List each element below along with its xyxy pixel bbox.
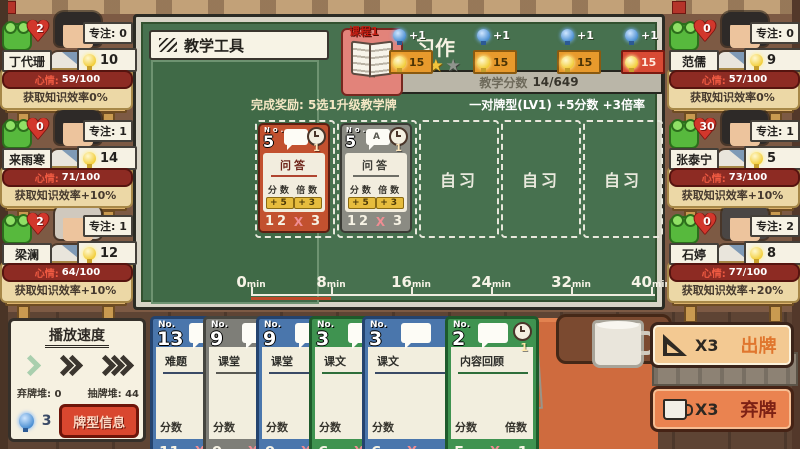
student-panel: ♥0 专注: 0 范儒 9 心情:57/100 获取知识效率0%	[667, 12, 800, 114]
bulb-icon	[393, 56, 406, 69]
student-name: 来雨寒	[2, 148, 52, 170]
student-name: 石婷	[669, 243, 719, 265]
bulb-icon	[750, 247, 763, 260]
hand-card[interactable]: No.2 1 内容回顾 分数 倍数 5X1	[445, 316, 539, 449]
book-icon	[351, 42, 393, 74]
card-mult: 3	[311, 214, 323, 229]
discard-pile-count: 弃牌堆: 0	[17, 385, 61, 400]
timeline-axis	[251, 294, 655, 296]
bulb-icon	[561, 56, 574, 69]
knowledge-badge: 12	[77, 241, 137, 265]
efficiency-text: 获取知识效率+10%	[0, 282, 131, 298]
focus-badge: 专注: 1	[83, 120, 133, 142]
student-name: 丁代珊	[2, 50, 52, 72]
speed-1x-button[interactable]	[21, 354, 40, 377]
student-panel: ♥0 专注: 2 石婷 8 心情:77/100 获取知识效率+20%	[667, 205, 800, 307]
completion-reward-text: 完成奖励: 5选1升级教学牌	[251, 96, 397, 113]
bulb-icon	[477, 29, 490, 42]
bulb-icon	[750, 54, 763, 67]
speed-2x-button[interactable]	[54, 354, 82, 377]
bulb-icon	[625, 56, 638, 69]
heart-value: 0	[693, 215, 721, 228]
student-panel: ♥2 专注: 0 丁代珊 10 心情:59/100 获取知识效率0%	[0, 12, 133, 114]
bulb-icon	[561, 29, 574, 42]
focus-badge: 专注: 2	[750, 215, 800, 237]
bulb-icon	[83, 247, 96, 260]
game-screen: ♥2 专注: 0 丁代珊 10 心情:59/100 获取知识效率0% ♥0 专注…	[0, 0, 800, 449]
bulb-icon	[477, 56, 490, 69]
milestone-marker: +1 15	[389, 29, 435, 73]
focus-badge: 专注: 1	[83, 215, 133, 237]
score-bonus-badge: +5	[266, 197, 294, 209]
student-name: 张泰宁	[669, 148, 719, 170]
bulb-icon	[83, 54, 96, 67]
focus-badge: 专注: 0	[750, 22, 800, 44]
timeline-progress	[251, 297, 331, 300]
student-panel: ♥2 专注: 1 梁澜 12 心情:64/100 获取知识效率+10%	[0, 205, 133, 307]
board-card[interactable]: No.5 A 1 问答 分数+5 倍数+3 12X3	[340, 123, 412, 233]
efficiency-text: 获取知识效率+20%	[667, 282, 798, 298]
heart-value: 2	[26, 22, 54, 35]
draw-pile-count: 抽牌堆: 44	[88, 385, 139, 400]
self-study-slot[interactable]: 自习	[583, 120, 663, 238]
speech-bubble-icon	[478, 323, 508, 343]
focus-badge: 专注: 1	[750, 120, 800, 142]
knowledge-badge: 14	[77, 146, 137, 170]
card-score: 5	[454, 443, 464, 449]
card-score: 12	[265, 214, 289, 229]
timeline-label: 0min	[221, 272, 281, 291]
bulb-icon	[83, 152, 96, 165]
combo-info-text: 一对牌型(LV1) +5分数 +3倍率	[469, 96, 645, 113]
mult-bonus-badge: +3	[294, 197, 322, 209]
knowledge-badge: 9	[744, 48, 800, 72]
card-number: 5	[345, 132, 359, 151]
bulb-icon	[393, 29, 406, 42]
efficiency-text: 获取知识效率0%	[0, 89, 131, 105]
board-card[interactable]: No.5 1 问答 分数+5 倍数+3 12X3	[258, 123, 330, 233]
score-bonus-badge: +5	[348, 197, 376, 209]
efficiency-text: 获取知识效率+10%	[0, 187, 131, 203]
hand-cards: No.13 难题 分数 11X No.9 课堂 分数 9X No.9 课堂 分数…	[150, 316, 550, 449]
focus-badge: 专注: 0	[83, 22, 133, 44]
milestone-flag: 15	[389, 50, 433, 74]
efficiency-text: 获取知识效率0%	[667, 89, 798, 105]
mug-icon	[663, 399, 687, 420]
speed-controls	[21, 349, 133, 381]
card-mult: 3	[393, 214, 405, 229]
heart-value: 0	[693, 22, 721, 35]
card-score: 11	[159, 443, 180, 449]
lesson-slot[interactable]: No.5 1 问答 分数+5 倍数+3 12X3	[255, 120, 335, 238]
knowledge-badge: 10	[77, 48, 137, 72]
teaching-score-value: 14/649	[532, 75, 578, 89]
mood-bar: 心情:77/100	[669, 263, 800, 282]
student-name: 范儒	[669, 50, 719, 72]
speech-bubble-icon: A	[366, 129, 390, 145]
blackboard: 教学工具 课程1 习作 ★★★ 教学分数 14/649 +1 15 +1 15	[133, 14, 665, 310]
speech-bubble-icon	[284, 129, 308, 145]
timeline-label: 8min	[301, 272, 361, 291]
card-title: 内容回顾	[458, 351, 528, 374]
card-title: 问答	[353, 157, 399, 177]
mood-bar: 心情:71/100	[2, 168, 133, 187]
card-score: 6	[371, 443, 381, 449]
blackboard-surface: 教学工具 课程1 习作 ★★★ 教学分数 14/649 +1 15 +1 15	[141, 22, 657, 302]
heart-icon: ♥0	[25, 114, 55, 146]
knowledge-badge: 5	[744, 146, 800, 170]
card-title: 问答	[271, 157, 317, 177]
lesson-badge: 课程1	[349, 23, 379, 39]
bulb-icon	[19, 413, 34, 429]
heart-value: 30	[693, 120, 721, 133]
milestone-marker: +1 15	[473, 29, 519, 73]
card-number: 2	[452, 328, 465, 350]
milestone-flag: 15	[621, 50, 665, 74]
card-score: 12	[347, 214, 371, 229]
self-study-slot[interactable]: 自习	[501, 120, 581, 238]
discard-cards-button[interactable]: X3 弃牌	[650, 386, 794, 432]
teaching-tools-header: 教学工具	[149, 30, 329, 60]
card-mult: 1	[518, 443, 528, 449]
play-cards-button[interactable]: X3 出牌	[650, 322, 794, 368]
chevron-icon	[20, 354, 41, 375]
mood-bar: 心情:57/100	[669, 70, 800, 89]
mood-bar: 心情:64/100	[2, 263, 133, 282]
heart-value: 2	[26, 215, 54, 228]
timeline-label: 16min	[381, 272, 441, 291]
playback-panel: 播放速度 弃牌堆: 0 抽牌堆: 44 3 牌型信息	[8, 318, 146, 442]
card-score: 9	[212, 443, 222, 449]
lesson-slot[interactable]: No.5 A 1 问答 分数+5 倍数+3 12X3	[337, 120, 417, 238]
card-number: 9	[210, 328, 223, 350]
heart-icon: ♥2	[25, 16, 55, 48]
student-panel: ♥30 专注: 1 张泰宁 5 心情:73/100 获取知识效率+10%	[667, 110, 800, 212]
heart-icon: ♥30	[692, 114, 722, 146]
mood-bar: 心情:59/100	[2, 70, 133, 89]
milestone-flag: 15	[557, 50, 601, 74]
card-number: 13	[157, 328, 183, 350]
efficiency-text: 获取知识效率+10%	[667, 187, 798, 203]
card-number: 9	[263, 328, 276, 350]
card-score: 6	[318, 443, 328, 449]
timeline-label: 32min	[541, 272, 601, 291]
self-study-slot[interactable]: 自习	[419, 120, 499, 238]
timeline-label: 24min	[461, 272, 521, 291]
bulb-count: 3	[42, 413, 52, 429]
milestone-flag: 15	[473, 50, 517, 74]
card-number: 3	[369, 328, 382, 350]
cup-prop	[592, 320, 644, 368]
hatch-icon	[159, 38, 177, 52]
student-panel: ♥0 专注: 1 来雨寒 14 心情:71/100 获取知识效率+10%	[0, 110, 133, 212]
card-number: 5	[263, 132, 277, 151]
bulb-icon	[625, 29, 638, 42]
knowledge-badge: 8	[744, 241, 800, 265]
ruler-icon	[663, 334, 687, 356]
student-name: 梁澜	[2, 243, 52, 265]
heart-icon: ♥2	[25, 209, 55, 241]
milestone-marker: +1 15	[557, 29, 603, 73]
speed-3x-button[interactable]	[96, 354, 133, 377]
bulb-icon	[750, 152, 763, 165]
mood-bar: 心情:73/100	[669, 168, 800, 187]
card-type-info-button[interactable]: 牌型信息	[59, 404, 139, 438]
heart-icon: ♥0	[692, 16, 722, 48]
heart-value: 0	[26, 120, 54, 133]
card-score: 9	[265, 443, 275, 449]
speech-bubble-icon	[401, 323, 431, 343]
milestone-marker: +1 15	[621, 29, 667, 73]
card-number: 3	[316, 328, 329, 350]
playback-title: 播放速度	[11, 325, 143, 345]
mult-bonus-badge: +3	[376, 197, 404, 209]
star-icon: ★	[446, 56, 463, 76]
heart-icon: ♥0	[692, 209, 722, 241]
clock-icon	[513, 322, 532, 341]
